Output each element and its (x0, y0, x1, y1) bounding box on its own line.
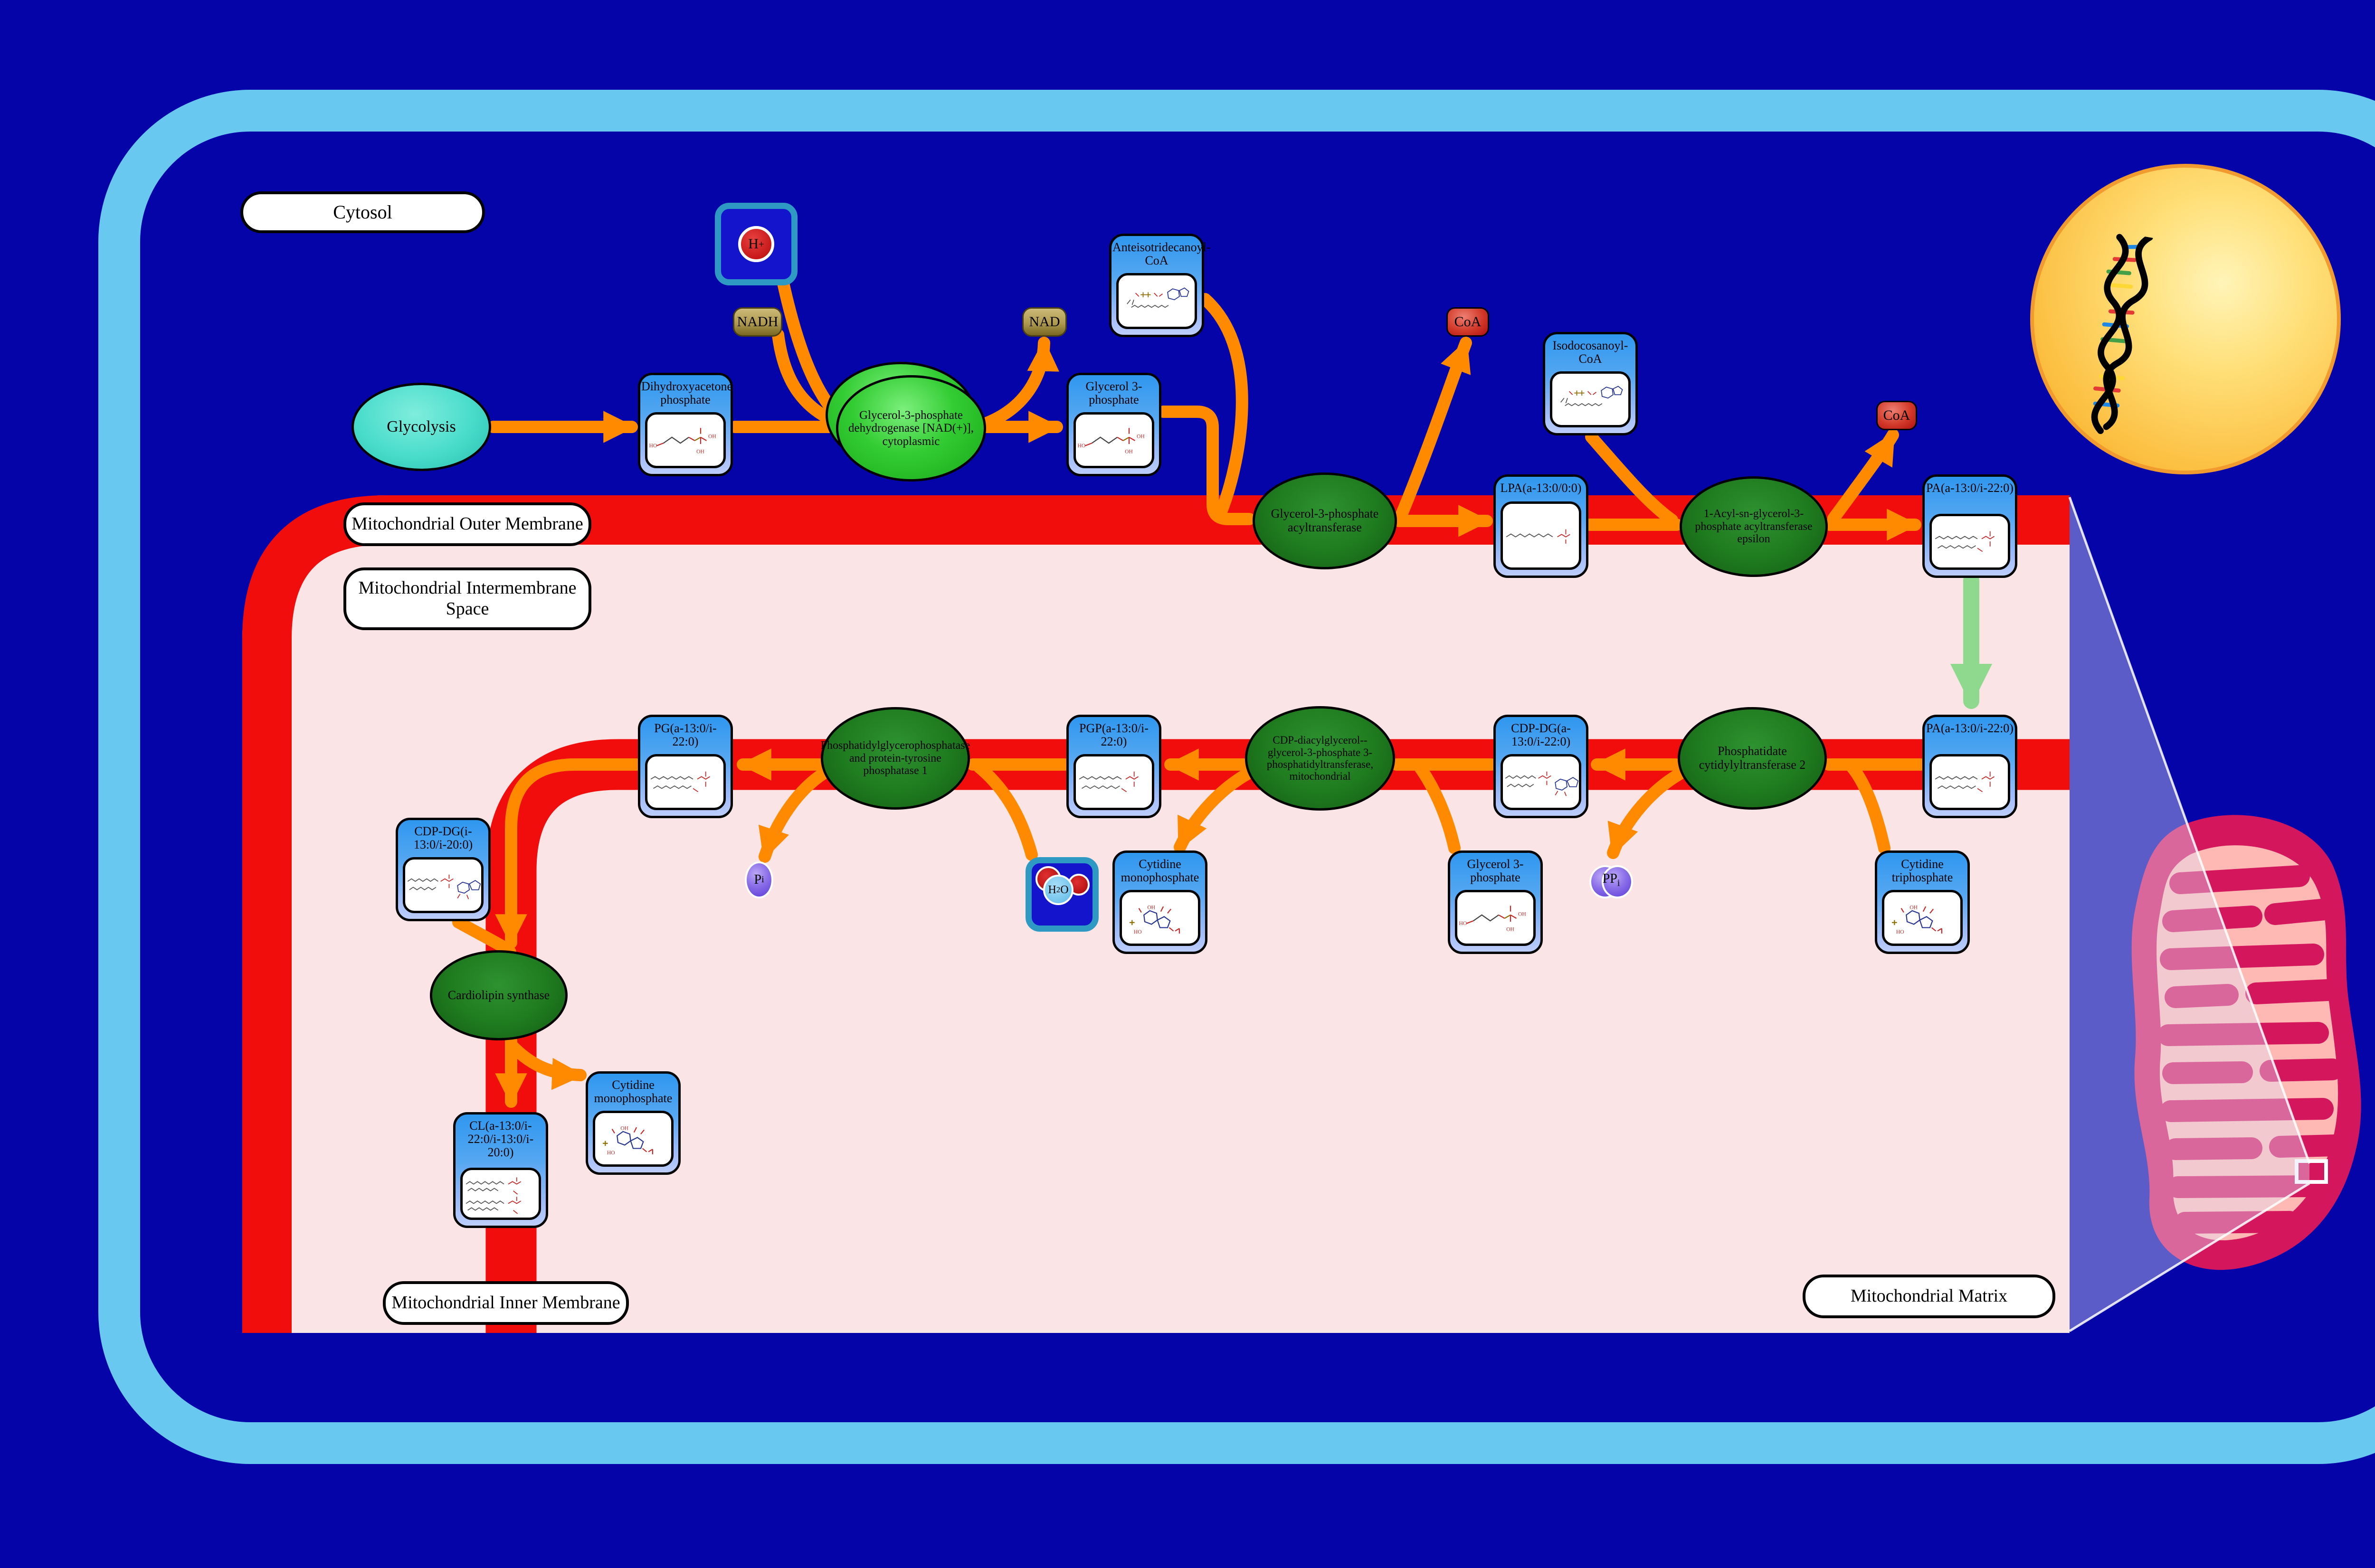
chemical-structure (1076, 757, 1152, 807)
metabolite-node-g3p-bottom[interactable]: Glycerol 3-phosphate (1448, 850, 1543, 954)
chemical-structure (405, 860, 481, 910)
water-molecule-icon: H2O (1043, 875, 1073, 905)
chemical-structure (1503, 757, 1579, 807)
chemical-structure (1119, 276, 1195, 326)
metabolite-node-cdpdg-i[interactable]: CDP-DG(i-13:0/i-20:0) (396, 818, 491, 921)
metabolite-node-ctp[interactable]: Cytidine triphosphate (1875, 850, 1970, 954)
enzyme-node-gpd[interactable]: Glycerol-3-phosphate dehydrogenase [NAD(… (836, 375, 986, 482)
enzyme-node-agpat[interactable]: 1-Acyl-sn-glycerol-3-phosphate acyltrans… (1680, 476, 1828, 577)
chemical-structure (647, 416, 723, 465)
arrow-h2o-in (979, 767, 1032, 855)
label-intermembrane-space: Mitochondrial Intermembrane Space (343, 567, 591, 630)
chemical-structure (463, 1169, 539, 1219)
arrow-crls1-to-cmp2 (511, 1045, 580, 1075)
metabolite-node-cmp-1[interactable]: Cytidine monophosphate (1112, 850, 1207, 954)
label-matrix: Mitochondrial Matrix (1803, 1275, 2055, 1318)
chemical-structure (1884, 893, 1960, 943)
metabolite-node-isodocosanoyl-coa[interactable]: Isodocosanoyl-CoA (1543, 332, 1638, 435)
chemical-structure (595, 1114, 671, 1163)
label-inner-membrane: Mitochondrial Inner Membrane (383, 1281, 629, 1325)
metabolite-node-cmp-2[interactable]: Cytidine monophosphate (586, 1071, 681, 1175)
chemical-structure (1076, 416, 1152, 465)
enzyme-node-crls1[interactable]: Cardiolipin synthase (430, 950, 568, 1040)
metabolite-node-cardiolipin[interactable]: CL(a-13:0/i-22:0/i-13:0/i-20:0) (453, 1112, 548, 1228)
arrow-cdpdg2-in (458, 922, 510, 952)
metabolite-node-dhap[interactable]: Dihydroxyacetone phosphate (638, 373, 733, 476)
cofactor-node-nadh[interactable]: NADH (733, 307, 782, 337)
chemical-structure (1457, 893, 1533, 943)
dna-helix-icon (2045, 226, 2199, 452)
arrow-agpat-to-coa (1833, 435, 1893, 519)
cofactor-node-nad[interactable]: NAD (1022, 307, 1067, 337)
cofactor-node-coa-2[interactable]: CoA (1876, 401, 1917, 430)
enzyme-node-cds2[interactable]: Phosphatidate cytidylyltransferase 2 (1678, 707, 1827, 810)
cofactor-node-coa-1[interactable]: CoA (1446, 307, 1489, 337)
magnification-beam (2070, 497, 2309, 1331)
chemical-structure (1503, 511, 1579, 560)
process-node-glycolysis[interactable]: Glycolysis (351, 383, 491, 471)
arrow-cds2-to-ppi (1613, 768, 1690, 853)
chemical-structure (1122, 893, 1198, 943)
enzyme-node-gpat[interactable]: Glycerol-3-phosphate acyltransferase (1253, 472, 1397, 569)
arrow-pgs1-to-cmp (1180, 768, 1258, 847)
metabolite-node-cdpdg-a[interactable]: CDP-DG(a-13:0/i-22:0) (1493, 715, 1588, 818)
metabolite-node-pgp[interactable]: PGP(a-13:0/i-22:0) (1066, 715, 1161, 818)
enzyme-node-pgs1[interactable]: CDP-diacylglycerol--glycerol-3-phosphate… (1245, 706, 1395, 811)
proton-icon: H+ (738, 226, 774, 262)
arrow-pg-to-crls1 (511, 765, 636, 943)
metabolite-node-pa-top[interactable]: PA(a-13:0/i-22:0) (1922, 474, 2017, 578)
chemical-structure (1932, 517, 2008, 567)
metabolite-node-g3p-top[interactable]: Glycerol 3-phosphate (1066, 373, 1161, 476)
chemical-structure (1552, 375, 1628, 424)
metabolite-node-pg[interactable]: PG(a-13:0/i-22:0) (638, 715, 733, 818)
cofactor-node-hplus[interactable]: H+ (715, 203, 798, 285)
cofactor-node-pi[interactable]: Pi (745, 861, 773, 898)
arrow-g3p2-in (1419, 766, 1454, 848)
metabolite-node-pa-bottom[interactable]: PA(a-13:0/i-22:0) (1922, 715, 2017, 818)
cofactor-node-h2o[interactable]: H2O (1026, 857, 1099, 932)
metabolite-node-anteisotridecanoyl-coa[interactable]: Anteisotridecanoyl-CoA (1109, 234, 1204, 337)
enzyme-node-ptpmt1[interactable]: Phosphatidylglycerophosphatase and prote… (821, 707, 970, 810)
arrow-ptpmt1-to-pi (765, 768, 832, 857)
pathway-canvas: HO OH OH (0, 0, 2375, 1568)
label-cytosol: Cytosol (240, 191, 485, 233)
label-outer-membrane: Mitochondrial Outer Membrane (343, 502, 591, 546)
arrow-ctp-in (1852, 766, 1884, 848)
chemical-structure (1932, 757, 2008, 807)
nucleus (2030, 164, 2341, 474)
arrow-isodococoa-in (1591, 437, 1672, 520)
arrow-gpd-to-nad (984, 343, 1044, 424)
metabolite-node-lpa[interactable]: LPA(a-13:0/0:0) (1493, 474, 1588, 578)
arrow-gpat-to-coa (1401, 343, 1466, 515)
cofactor-node-ppi[interactable]: PPi (1589, 860, 1633, 900)
chemical-structure (647, 757, 723, 807)
